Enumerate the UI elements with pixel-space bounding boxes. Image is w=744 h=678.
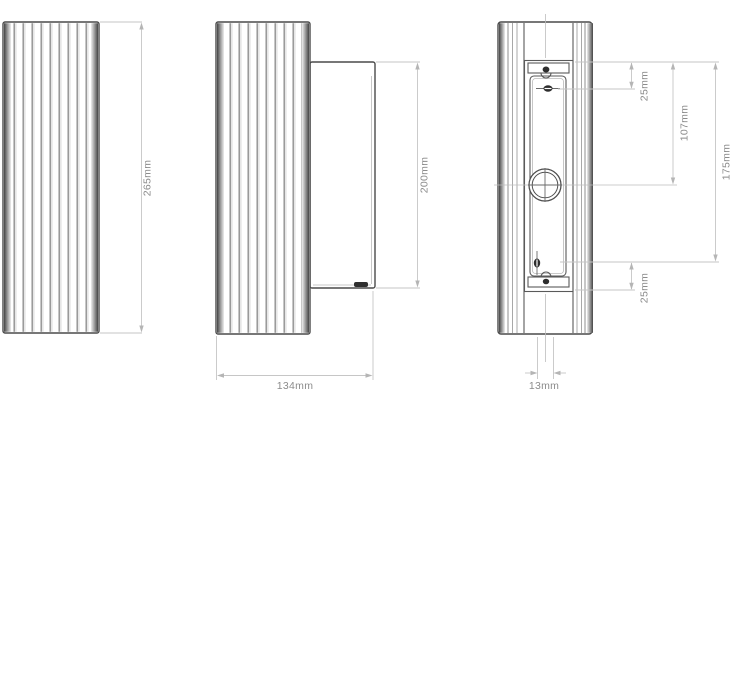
back-right-edge-band — [587, 23, 593, 333]
side-ribs — [224, 23, 302, 333]
dimension-drawing: 265mm 200mm 134mm — [0, 0, 744, 678]
arrow-down-icon — [713, 255, 717, 262]
side-view: 200mm 134mm — [216, 22, 431, 392]
back-cable-width-label: 13mm — [529, 380, 559, 392]
arrow-up-icon — [139, 23, 143, 30]
arrow-up-icon — [671, 63, 675, 70]
arrow-up-icon — [629, 63, 633, 70]
back-top-offset-label: 25mm — [639, 71, 651, 101]
arrow-up-icon — [629, 263, 633, 270]
side-bracket-box — [310, 62, 375, 288]
back-view: 25mm 107mm 175mm 25mm — [494, 14, 733, 392]
back-bottom-offset-label: 25mm — [639, 273, 651, 303]
front-right-edge-band — [91, 23, 98, 332]
arrow-down-icon — [629, 82, 633, 89]
back-left-edge-band — [499, 23, 505, 333]
arrow-right-icon — [531, 371, 538, 375]
side-width-label: 134mm — [277, 380, 314, 392]
side-height-label: 200mm — [419, 157, 431, 194]
front-left-edge-band — [4, 23, 11, 332]
arrow-down-icon — [629, 283, 633, 290]
front-height-label: 265mm — [142, 160, 154, 197]
front-view: 265mm — [3, 22, 154, 333]
back-center-offset-dimension: 107mm — [671, 63, 691, 185]
side-left-edge-band — [217, 23, 224, 333]
arrow-right-icon — [366, 373, 373, 377]
top-fixing-screw — [543, 67, 550, 73]
arrow-left-icon — [217, 373, 224, 377]
front-ribs — [11, 23, 91, 332]
front-height-dimension: 265mm — [100, 22, 154, 333]
arrow-down-icon — [415, 281, 419, 288]
back-center-offset-label: 107mm — [679, 105, 691, 142]
brand-mark — [354, 282, 368, 287]
arrow-down-icon — [671, 178, 675, 185]
bottom-fixing-screw — [543, 279, 549, 285]
arrow-up-icon — [415, 63, 419, 70]
side-right-edge-band — [302, 23, 309, 333]
drawing-canvas: 265mm 200mm 134mm — [0, 0, 744, 678]
arrow-up-icon — [713, 63, 717, 70]
side-height-dimension: 200mm — [376, 62, 431, 288]
arrow-down-icon — [139, 326, 143, 333]
back-mount-span-label: 175mm — [721, 144, 733, 181]
arrow-left-icon — [554, 371, 561, 375]
